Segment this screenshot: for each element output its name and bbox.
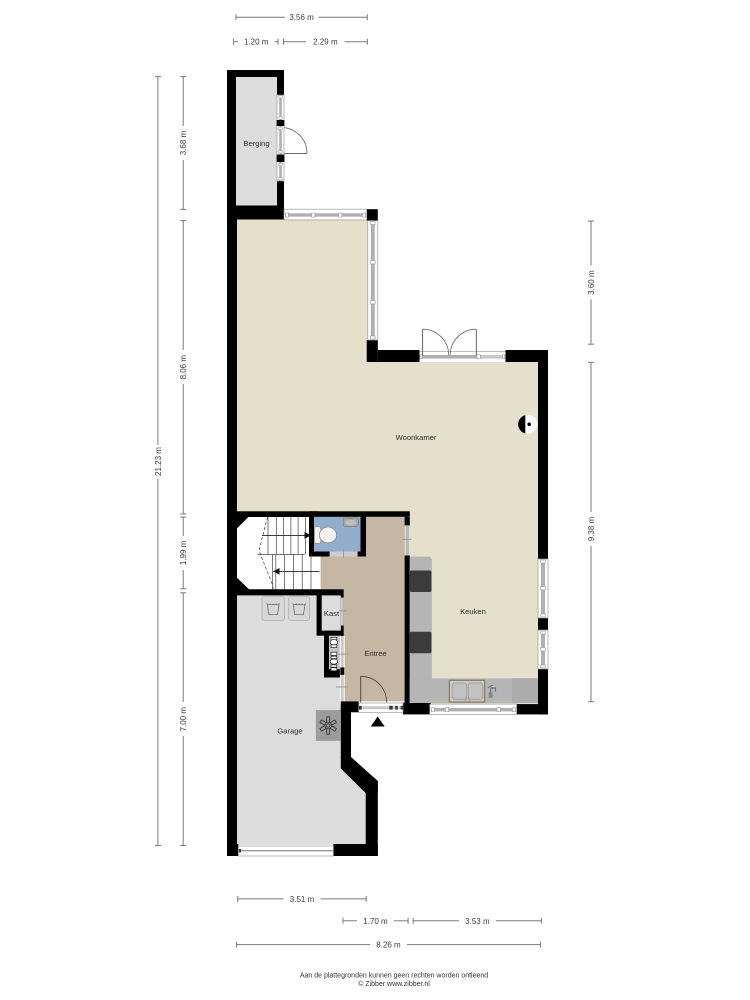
svg-text:Woonkamer: Woonkamer	[396, 433, 437, 442]
svg-text:Entree: Entree	[364, 649, 386, 658]
svg-text:Kast: Kast	[324, 609, 340, 618]
svg-text:7.00 m: 7.00 m	[179, 707, 188, 732]
svg-text:3.51 m: 3.51 m	[290, 895, 315, 904]
svg-text:1.70 m: 1.70 m	[363, 917, 388, 926]
svg-text:Keuken: Keuken	[460, 607, 486, 616]
svg-text:21.23 m: 21.23 m	[154, 447, 163, 476]
svg-text:8.06 m: 8.06 m	[179, 355, 188, 380]
svg-text:Berging: Berging	[243, 139, 269, 148]
svg-text:Garage: Garage	[277, 727, 302, 736]
svg-text:3.56 m: 3.56 m	[289, 13, 314, 22]
svg-text:1.20 m: 1.20 m	[244, 38, 269, 47]
svg-text:9.38 m: 9.38 m	[587, 516, 596, 541]
svg-text:3.60 m: 3.60 m	[587, 270, 596, 295]
svg-text:© Zibber www.zibber.nl: © Zibber www.zibber.nl	[358, 980, 430, 988]
svg-text:1.99 m: 1.99 m	[179, 540, 188, 565]
svg-text:8.26 m: 8.26 m	[376, 941, 401, 950]
svg-text:2.29 m: 2.29 m	[313, 38, 338, 47]
svg-text:Aan de plattegronden kunnen ge: Aan de plattegronden kunnen geen rechten…	[300, 973, 488, 980]
svg-text:3.68 m: 3.68 m	[179, 130, 188, 155]
svg-text:3.53 m: 3.53 m	[465, 917, 490, 926]
